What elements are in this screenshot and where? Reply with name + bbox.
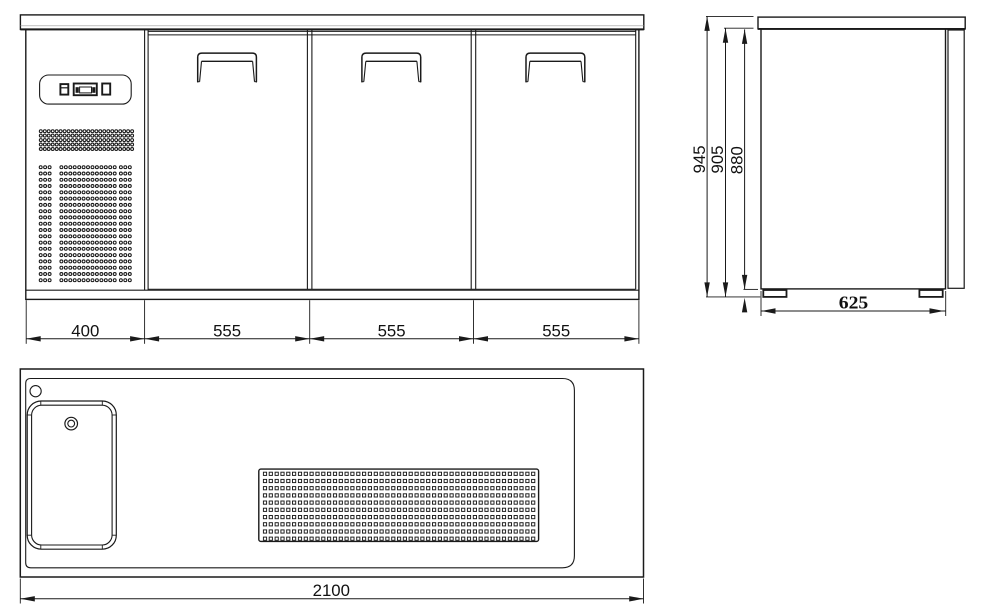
svg-text:2100: 2100 bbox=[313, 581, 350, 600]
svg-text:905: 905 bbox=[708, 146, 727, 174]
svg-text:400: 400 bbox=[71, 322, 99, 341]
svg-text:555: 555 bbox=[378, 322, 406, 341]
svg-text:880: 880 bbox=[728, 146, 747, 174]
svg-text:945: 945 bbox=[690, 145, 709, 173]
svg-text:625: 625 bbox=[839, 293, 869, 313]
svg-text:555: 555 bbox=[542, 322, 570, 341]
svg-text:555: 555 bbox=[213, 322, 241, 341]
